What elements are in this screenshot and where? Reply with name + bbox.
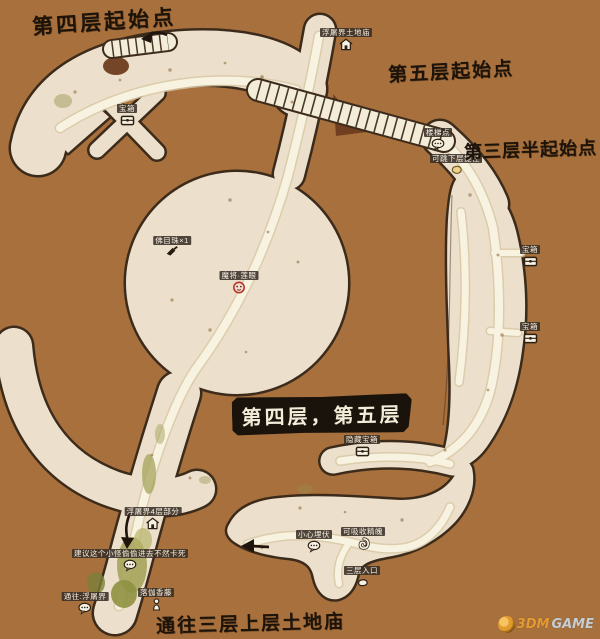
marker-chest-right-1: 宝箱 — [520, 245, 540, 268]
floor-badge: 第四层，第五层 — [232, 393, 413, 436]
marker-label: 宝箱 — [117, 104, 137, 113]
temple-icon — [339, 38, 353, 51]
marker-boss: 魔将·莲眼 — [220, 271, 259, 294]
speech-bubble-icon — [123, 559, 137, 572]
marker-label: 佛目珠×1 — [153, 236, 191, 245]
map-screenshot: 第四层起始点 第五层起始点 第三层半起始点 第四层，第五层 通往三层上层土地庙 … — [0, 0, 600, 639]
marker-label: 宝箱 — [520, 245, 540, 254]
marker-chest-right-2: 宝箱 — [520, 322, 540, 345]
marker-label: 通往:浮屠界 — [62, 592, 109, 601]
marker-spirit: 可吸收精魄 — [341, 527, 385, 550]
npc-icon — [151, 598, 162, 611]
marker-label: 浮屠界土地庙 — [320, 28, 372, 37]
marker-label: 隐藏宝箱 — [344, 435, 380, 444]
speech-bubble-icon — [307, 540, 321, 553]
marker-tunnel-note: 通往:浮屠界 — [62, 592, 109, 615]
boss-icon — [233, 281, 246, 294]
item-icon — [450, 164, 463, 175]
title-bottom-exit: 通往三层上层土地庙 — [156, 607, 346, 639]
marker-chest-topleft: 宝箱 — [117, 104, 137, 127]
marker-vine: 落伽香藤 — [138, 588, 174, 611]
watermark-logo-icon — [498, 616, 515, 633]
chest-icon — [523, 332, 538, 345]
pickup-icon — [356, 576, 369, 587]
spirit-icon — [357, 537, 370, 550]
title-floor3half-start: 第三层半起始点 — [464, 134, 598, 165]
speech-bubble-icon — [78, 602, 92, 615]
marker-label: 魔将·莲眼 — [220, 271, 259, 280]
marker-label: 宝箱 — [520, 322, 540, 331]
marker-label: 楼梯点 — [424, 128, 452, 137]
watermark-brand: 3DM — [517, 617, 550, 632]
marker-shrine-4f: 浮屠界4层部分 — [125, 507, 182, 530]
watermark-suffix: GAME — [551, 617, 594, 632]
speech-bubble-icon — [431, 138, 445, 151]
arrow-bottom-left-icon — [252, 546, 269, 547]
marker-ambush-note: 小心埋伏 — [296, 530, 332, 553]
chest-icon — [523, 255, 538, 268]
buried-item-icon — [166, 246, 179, 257]
watermark: 3DM GAME — [498, 616, 594, 633]
marker-label: 浮屠界4层部分 — [125, 507, 182, 516]
marker-label: 三层入口 — [344, 566, 380, 575]
marker-advice-note: 建议这个小怪偷偷进去不然卡死 — [72, 549, 188, 572]
chest-icon — [120, 114, 135, 127]
marker-label: 落伽香藤 — [138, 588, 174, 597]
marker-shrine-top: 浮屠界土地庙 — [320, 28, 372, 51]
temple-icon — [146, 517, 160, 530]
marker-hidden-chest: 隐藏宝箱 — [344, 435, 380, 458]
floor-badge-label: 第四层，第五层 — [241, 398, 403, 430]
marker-floor3-entrance: 三层入口 — [344, 566, 380, 587]
marker-label: 可吸收精魄 — [341, 527, 385, 536]
marker-stairs-note: 楼梯点 — [424, 128, 452, 151]
marker-label: 建议这个小怪偷偷进去不然卡死 — [72, 549, 188, 558]
marker-label: 小心埋伏 — [296, 530, 332, 539]
marker-buddha-eye: 佛目珠×1 — [153, 236, 191, 257]
chest-icon — [355, 445, 370, 458]
